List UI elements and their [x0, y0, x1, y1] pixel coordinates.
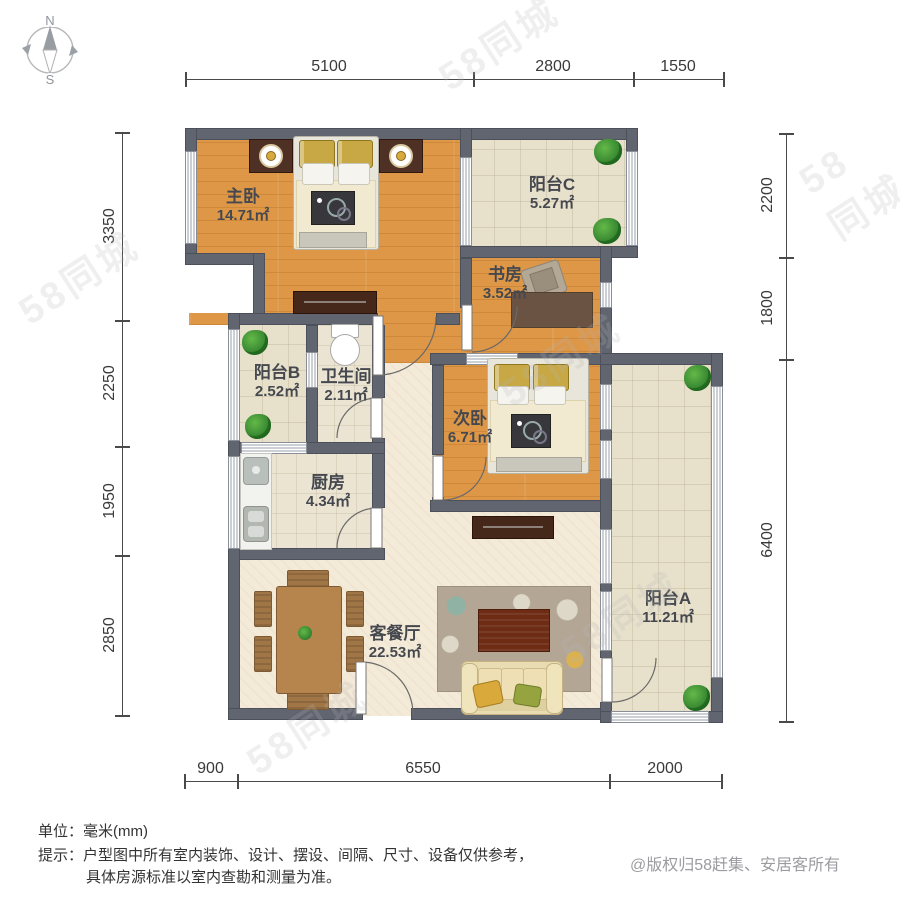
bedroom2-door-leaf: [433, 456, 443, 500]
room-name: 次卧: [448, 409, 492, 429]
room-area: 2.11㎡: [321, 387, 372, 405]
disclaimer-line1: 提示：户型图中所有室内装饰、设计、摆设、间隔、尺寸、设备仅供参考，: [38, 844, 533, 865]
dimension-tick: [185, 72, 187, 87]
disclaimer-line2: 具体房源标准以室内查勘和测量为准。: [86, 866, 341, 887]
right-dimension-label: 6400: [759, 522, 777, 558]
room-label-balcony-c: 阳台C5.27㎡: [529, 175, 575, 213]
dimension-tick: [779, 359, 794, 361]
room-label-bedroom-2: 次卧6.71㎡: [448, 409, 492, 447]
room-name: 卫生间: [321, 367, 372, 387]
copyright: @版权归58赶集、安居客所有: [630, 851, 840, 875]
kitchen-door-leaf: [371, 508, 382, 548]
balcony-a-door-arc: [612, 658, 656, 702]
compass-south-label: S: [46, 72, 55, 87]
dimension-tick: [115, 132, 130, 134]
room-name: 阳台B: [254, 363, 300, 383]
right-dimension-label: 2200: [759, 177, 777, 213]
study-door-arc: [472, 307, 517, 352]
study-door-leaf: [462, 305, 472, 350]
right-dimension-label: 1800: [759, 290, 777, 326]
room-name: 客餐厅: [369, 624, 422, 644]
left-dimension-label: 3350: [101, 208, 119, 244]
room-name: 主卧: [217, 187, 270, 207]
room-name: 书房: [483, 265, 527, 285]
door-arcs: [0, 0, 900, 900]
dimension-tick: [779, 721, 794, 723]
left-dimension-line: [122, 132, 123, 715]
dimension-tick: [473, 72, 475, 87]
bottom-dimension-label: 900: [197, 760, 224, 778]
room-name: 阳台C: [529, 175, 575, 195]
room-label-balcony-b: 阳台B2.52㎡: [254, 363, 300, 401]
room-area: 3.52㎡: [483, 285, 527, 303]
room-area: 4.34㎡: [306, 493, 350, 511]
dimension-tick: [115, 446, 130, 448]
units-note: 单位：毫米(mm): [38, 820, 148, 841]
top-dimension-label: 1550: [660, 58, 696, 76]
top-dimension-line: [185, 79, 723, 80]
left-dimension-label: 1950: [101, 483, 119, 519]
dimension-tick: [115, 320, 130, 322]
room-area: 11.21㎡: [642, 609, 694, 627]
room-label-kitchen: 厨房4.34㎡: [306, 473, 350, 511]
room-area: 2.52㎡: [254, 383, 300, 401]
room-area: 14.71㎡: [217, 207, 270, 225]
dimension-tick: [115, 555, 130, 557]
dimension-tick: [779, 133, 794, 135]
dimension-tick: [779, 257, 794, 259]
room-area: 5.27㎡: [529, 195, 575, 213]
right-dimension-line: [786, 133, 787, 721]
compass-icon: N S: [14, 8, 86, 88]
bottom-dimension-label: 2000: [647, 760, 683, 778]
bedroom2-door-arc: [443, 457, 486, 500]
master-bedroom-door-leaf: [373, 316, 383, 375]
room-label-balcony-a: 阳台A11.21㎡: [642, 589, 694, 627]
dimension-tick: [184, 774, 186, 789]
room-label-living-dining: 客餐厅22.53㎡: [369, 624, 422, 662]
left-dimension-label: 2850: [101, 617, 119, 653]
dimension-tick: [609, 774, 611, 789]
floor-plan-page: N S 510028001550900655020003350225019502…: [0, 0, 900, 900]
bottom-dimension-label: 6550: [405, 760, 441, 778]
entry-door-arc: [361, 662, 413, 714]
dimension-tick: [721, 774, 723, 789]
dimension-tick: [237, 774, 239, 789]
top-dimension-label: 2800: [535, 58, 571, 76]
room-area: 22.53㎡: [369, 644, 422, 662]
entry-door-leaf: [356, 662, 366, 714]
compass-north-label: N: [45, 13, 54, 28]
dimension-tick: [633, 72, 635, 87]
room-label-master-bedroom: 主卧14.71㎡: [217, 187, 270, 225]
room-name: 厨房: [306, 473, 350, 493]
bathroom-door-leaf: [371, 398, 382, 438]
left-dimension-label: 2250: [101, 365, 119, 401]
room-area: 6.71㎡: [448, 429, 492, 447]
top-dimension-label: 5100: [311, 58, 347, 76]
room-label-study: 书房3.52㎡: [483, 265, 527, 303]
bottom-dimension-line: [184, 781, 721, 782]
balcony-a-door-leaf: [602, 658, 612, 702]
dimension-tick: [115, 715, 130, 717]
dimension-tick: [723, 72, 725, 87]
room-label-bathroom: 卫生间2.11㎡: [321, 367, 372, 405]
room-name: 阳台A: [642, 589, 694, 609]
master-bedroom-door-arc: [378, 317, 436, 375]
